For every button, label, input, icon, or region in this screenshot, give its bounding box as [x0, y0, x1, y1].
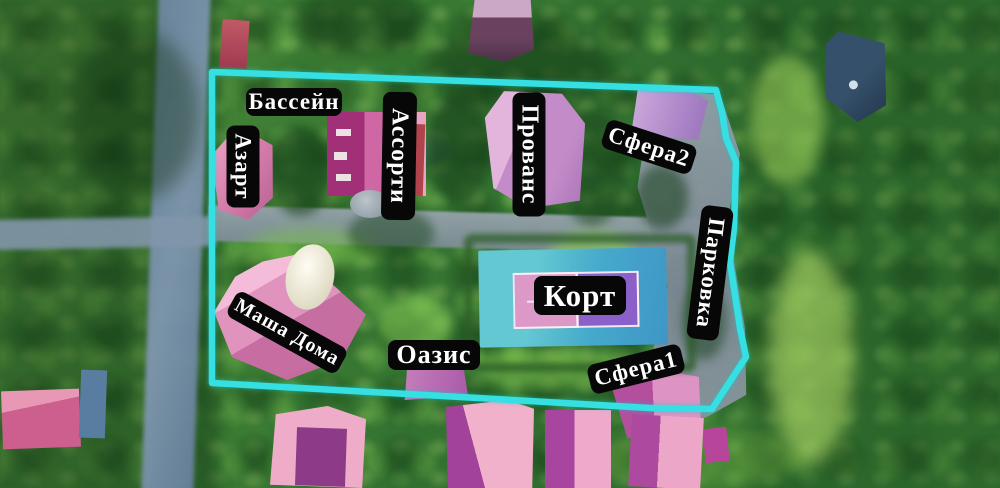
label-bassein-pool: Бассейн — [246, 88, 342, 116]
label-oazis-house: Оазис — [388, 340, 480, 370]
label-provans-house: Прованс — [513, 93, 546, 217]
label-azart-house: Азарт — [227, 126, 260, 208]
label-kort-tennis-court: Корт — [534, 276, 626, 315]
label-assorti-house: Ассорти — [381, 92, 417, 221]
aerial-site-photo: Бассейн Азарт Ассорти Прованс Сфера2 Пар… — [0, 0, 1000, 488]
property-boundary-outline — [0, 0, 1000, 488]
